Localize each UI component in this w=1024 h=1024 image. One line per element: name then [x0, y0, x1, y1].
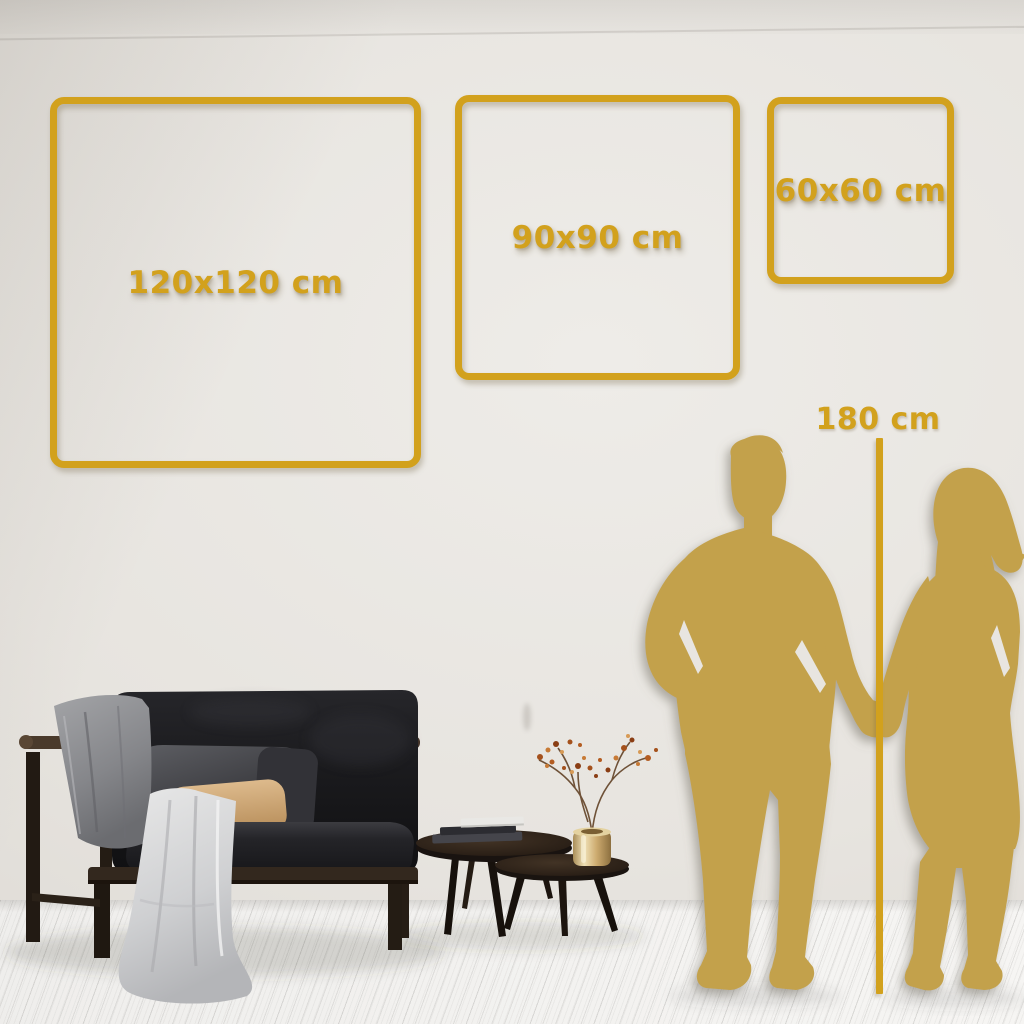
throw-blanket: [54, 695, 151, 849]
room-scene-graphic: [0, 0, 1024, 1024]
coffee-tables: [416, 734, 658, 937]
woman-silhouette: [874, 468, 1024, 991]
height-reference-label: 180 cm: [815, 402, 940, 437]
brass-vase: [573, 828, 611, 867]
man-silhouette: [645, 435, 885, 990]
berries: [537, 734, 658, 778]
berry-plant: [537, 734, 658, 834]
wall-smudge: [523, 703, 531, 731]
couple-silhouette: [645, 435, 1024, 990]
books: [432, 816, 525, 843]
height-reference-line: [876, 438, 883, 994]
size-guide-scene: 120x120 cm 90x90 cm 60x60 cm 180 cm: [0, 0, 1024, 1024]
